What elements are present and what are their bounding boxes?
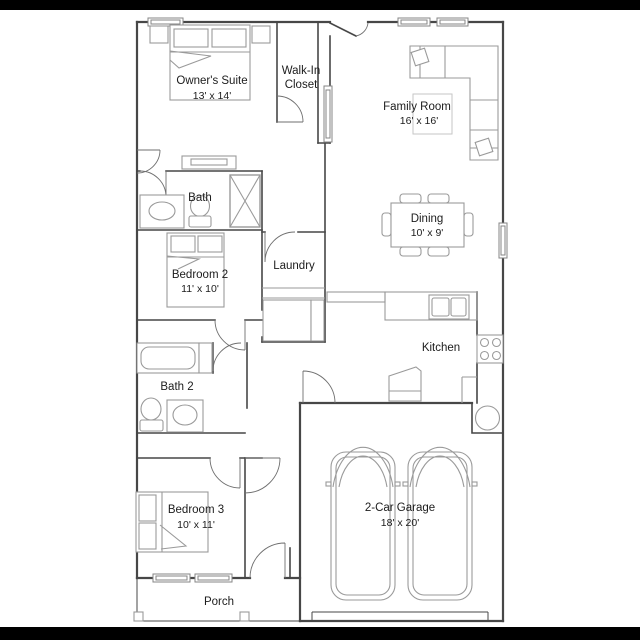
- toilet-icon: [140, 398, 163, 431]
- svg-text:Bedroom 2: Bedroom 2: [172, 269, 228, 281]
- bath-door-arc-icon: [140, 171, 166, 197]
- window-icon: [437, 18, 468, 26]
- corner-counter: [462, 377, 477, 403]
- chair-icon: [400, 247, 421, 256]
- svg-text:10' x 11': 10' x 11': [177, 519, 215, 531]
- hall-door-arc-icon: [245, 458, 280, 493]
- coffee-table-icon: [413, 94, 452, 134]
- dresser-icon: [182, 156, 236, 169]
- svg-text:Dining: Dining: [411, 213, 444, 225]
- svg-text:16' x 16': 16' x 16': [400, 115, 438, 127]
- svg-text:Closet: Closet: [285, 79, 318, 91]
- sink-icon: [140, 195, 184, 228]
- window-icon: [324, 86, 332, 142]
- room-label-bath: Bath: [188, 192, 212, 204]
- svg-text:11' x 10': 11' x 10': [181, 283, 219, 295]
- floor-plan-image: Owner's Suite 13' x 14' Walk-In Closet F…: [0, 0, 640, 640]
- bath2-door-arc-icon: [213, 343, 241, 371]
- room-label-porch: Porch: [204, 596, 234, 608]
- svg-text:2-Car Garage: 2-Car Garage: [365, 502, 435, 514]
- entry-angled-arc-icon: [356, 23, 368, 36]
- svg-text:10' x 9': 10' x 9': [411, 227, 444, 239]
- room-label-bath2: Bath 2: [160, 381, 193, 393]
- porch-post-icon: [134, 612, 143, 621]
- bed-icon: [150, 25, 270, 100]
- laundry-door-arc-icon: [265, 232, 295, 262]
- island-icon: [389, 367, 421, 401]
- chair-icon: [400, 194, 421, 203]
- stove-icon: [477, 335, 503, 363]
- svg-text:Bath 2: Bath 2: [160, 381, 193, 393]
- letterbox-bottom: [0, 627, 640, 640]
- chair-icon: [428, 247, 449, 256]
- garage-door-recess: [312, 612, 488, 620]
- svg-text:Kitchen: Kitchen: [422, 342, 460, 354]
- svg-text:Family Room: Family Room: [383, 101, 451, 113]
- nightstand-icon: [150, 26, 168, 43]
- bedroom3-door-arc-icon: [210, 458, 240, 488]
- room-label-kitchen: Kitchen: [422, 342, 460, 354]
- sink-icon: [167, 400, 203, 432]
- svg-text:18' x 20': 18' x 20': [381, 517, 419, 529]
- svg-text:Porch: Porch: [204, 596, 234, 608]
- chair-icon: [428, 194, 449, 203]
- floor-plan-page: Owner's Suite 13' x 14' Walk-In Closet F…: [0, 0, 640, 640]
- svg-text:Bedroom 3: Bedroom 3: [168, 504, 224, 516]
- kitchen-sink-icon: [429, 295, 469, 319]
- window-icon: [499, 223, 507, 258]
- room-label-family-room: Family Room 16' x 16': [383, 101, 451, 127]
- svg-text:13' x 14': 13' x 14': [193, 90, 231, 102]
- bathtub-icon: [137, 343, 212, 373]
- chair-icon: [382, 213, 391, 236]
- porch-post-icon: [240, 612, 249, 621]
- water-heater-icon: [476, 406, 500, 430]
- room-label-garage: 2-Car Garage 18' x 20': [365, 502, 435, 529]
- dining-table-icon: [382, 194, 473, 256]
- nightstand-icon: [252, 26, 270, 43]
- svg-text:Walk-In: Walk-In: [282, 65, 321, 77]
- letterbox-top: [0, 0, 640, 10]
- owners-suite-door-arc-icon: [137, 150, 160, 173]
- room-label-laundry: Laundry: [273, 260, 315, 272]
- svg-text:Bath: Bath: [188, 192, 212, 204]
- room-label-walk-in-closet: Walk-In Closet: [282, 65, 321, 91]
- window-icon: [398, 18, 430, 26]
- shower-icon: [230, 175, 260, 227]
- front-door-arc-icon: [250, 543, 285, 578]
- washer-dryer-icon: [262, 288, 325, 341]
- window-icon: [153, 574, 190, 582]
- svg-text:Owner's Suite: Owner's Suite: [176, 75, 247, 87]
- svg-text:Laundry: Laundry: [273, 260, 315, 272]
- closet-door-arc-icon: [277, 96, 303, 122]
- garage-entry-door-arc-icon: [303, 371, 335, 403]
- window-icon: [195, 574, 232, 582]
- chair-icon: [464, 213, 473, 236]
